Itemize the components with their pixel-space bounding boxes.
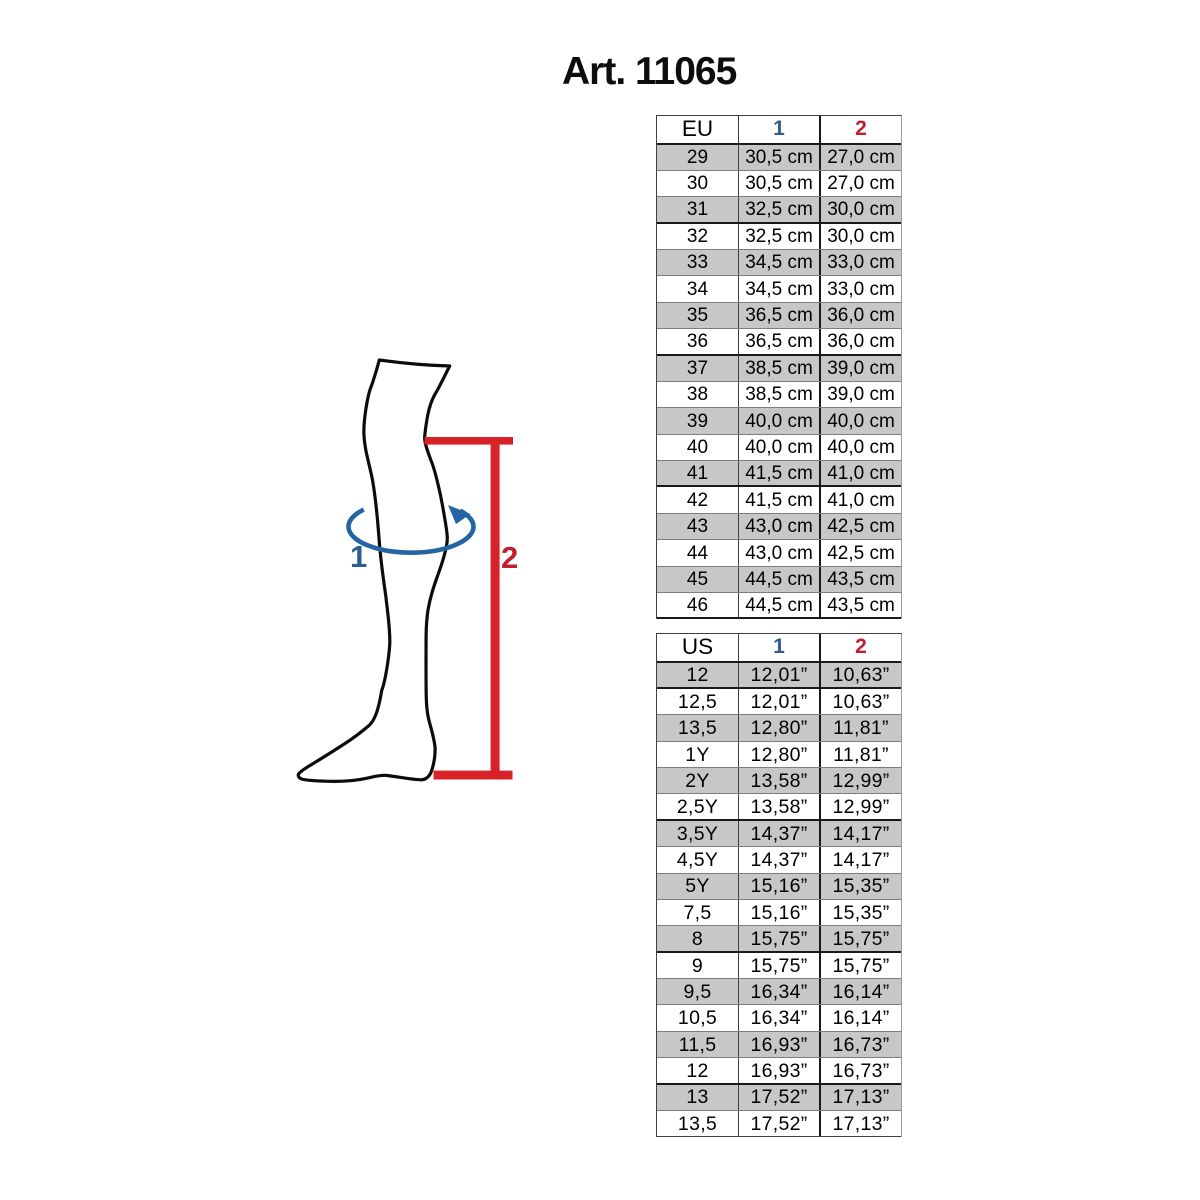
svg-text:2: 2: [501, 540, 518, 575]
svg-text:1: 1: [350, 539, 367, 574]
